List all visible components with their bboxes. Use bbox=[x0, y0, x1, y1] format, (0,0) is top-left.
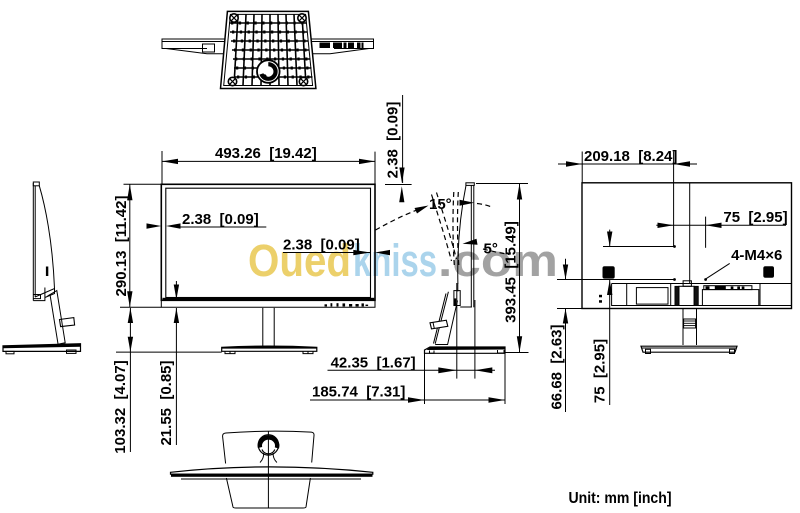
svg-text:Unit: mm [inch]: Unit: mm [inch] bbox=[569, 490, 672, 507]
svg-text:393.45 [15.49]: 393.45 [15.49] bbox=[502, 221, 519, 323]
svg-text:185.74 [7.31]: 185.74 [7.31] bbox=[312, 384, 405, 401]
svg-text:103.32 [4.07]: 103.32 [4.07] bbox=[112, 360, 129, 453]
svg-text:42.35 [1.67]: 42.35 [1.67] bbox=[331, 355, 416, 372]
svg-text:75 [2.95]: 75 [2.95] bbox=[723, 209, 787, 226]
svg-text:75 [2.95]: 75 [2.95] bbox=[591, 339, 608, 403]
svg-text:4-M4×6: 4-M4×6 bbox=[731, 247, 782, 264]
svg-text:2.38 [0.09]: 2.38 [0.09] bbox=[182, 211, 259, 228]
svg-text:66.68 [2.63]: 66.68 [2.63] bbox=[548, 324, 565, 409]
svg-text:15°: 15° bbox=[429, 196, 452, 213]
svg-text:5°: 5° bbox=[484, 241, 498, 258]
svg-text:290.13 [11.42]: 290.13 [11.42] bbox=[113, 196, 130, 297]
svg-text:2.38 [0.09]: 2.38 [0.09] bbox=[385, 102, 402, 179]
svg-text:2.38 [0.09]: 2.38 [0.09] bbox=[283, 237, 360, 254]
svg-text:21.55 [0.85]: 21.55 [0.85] bbox=[158, 360, 175, 445]
svg-text:.com: .com bbox=[438, 235, 558, 286]
svg-text:209.18 [8.24]: 209.18 [8.24] bbox=[584, 148, 677, 165]
svg-text:kniss: kniss bbox=[353, 235, 437, 286]
svg-text:493.26 [19.42]: 493.26 [19.42] bbox=[215, 145, 317, 162]
